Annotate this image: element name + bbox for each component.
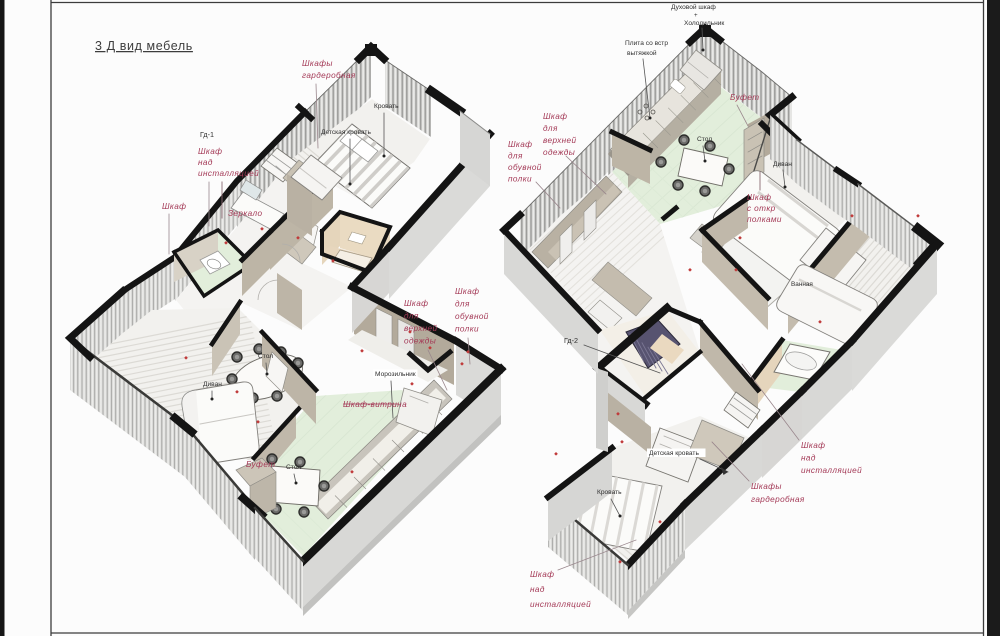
svg-text:Буфет: Буфет <box>246 460 275 469</box>
svg-text:Духовой шкаф: Духовой шкаф <box>671 3 716 11</box>
svg-text:полками: полками <box>747 215 782 224</box>
svg-text:Шкаф: Шкаф <box>162 202 186 211</box>
svg-text:Шкаф: Шкаф <box>530 570 554 579</box>
svg-text:для: для <box>455 300 470 309</box>
svg-text:Кровать: Кровать <box>597 489 622 496</box>
svg-text:с откр: с откр <box>747 204 776 213</box>
svg-text:+: + <box>694 12 698 19</box>
svg-text:Стол: Стол <box>697 136 712 143</box>
svg-text:Холодильник: Холодильник <box>684 20 724 27</box>
svg-text:Детская кровать: Детская кровать <box>321 129 371 136</box>
svg-text:Шкаф: Шкаф <box>801 441 825 450</box>
svg-text:3 Д вид мебель: 3 Д вид мебель <box>95 39 193 53</box>
svg-text:инсталляцией: инсталляцией <box>530 600 591 609</box>
svg-text:для: для <box>508 152 523 161</box>
svg-text:вытяжкой: вытяжкой <box>627 49 657 57</box>
svg-text:Буфет: Буфет <box>730 93 759 102</box>
svg-text:над: над <box>801 454 816 463</box>
svg-text:Шкаф: Шкаф <box>198 147 222 156</box>
svg-text:одежды: одежды <box>404 337 436 346</box>
svg-text:для: для <box>543 124 558 133</box>
svg-text:Гд-1: Гд-1 <box>200 130 214 139</box>
svg-text:инсталляцией: инсталляцией <box>198 169 259 178</box>
svg-text:гардеробная: гардеробная <box>751 495 805 504</box>
svg-text:Шкаф: Шкаф <box>508 140 532 149</box>
svg-text:Стол: Стол <box>286 464 301 471</box>
svg-text:Шкаф: Шкаф <box>455 287 479 296</box>
svg-text:Морозильник: Морозильник <box>375 371 416 378</box>
svg-text:обувной: обувной <box>455 312 489 321</box>
svg-text:верхней: верхней <box>543 136 576 145</box>
svg-text:инсталляцией: инсталляцией <box>801 466 862 475</box>
svg-text:Шкафы: Шкафы <box>302 59 333 68</box>
svg-text:Шкаф: Шкаф <box>747 193 771 202</box>
svg-text:Диван: Диван <box>773 161 792 168</box>
svg-text:Шкаф-витрина: Шкаф-витрина <box>343 400 407 409</box>
svg-text:Кровать: Кровать <box>374 103 399 110</box>
svg-text:одежды: одежды <box>543 148 575 157</box>
svg-text:Шкаф: Шкаф <box>404 299 428 308</box>
svg-text:над: над <box>198 158 213 167</box>
svg-text:Гд-2: Гд-2 <box>564 336 578 345</box>
svg-text:Шкаф: Шкаф <box>543 112 567 121</box>
svg-text:Ванная: Ванная <box>791 281 813 288</box>
svg-text:Стол: Стол <box>258 353 273 360</box>
svg-text:Диван: Диван <box>203 381 222 388</box>
svg-text:Детская кровать: Детская кровать <box>649 450 699 457</box>
svg-text:для: для <box>404 312 419 321</box>
svg-text:над: над <box>530 585 545 594</box>
svg-text:обувной: обувной <box>508 163 542 172</box>
svg-text:Шкафы: Шкафы <box>751 482 782 491</box>
svg-text:Плита со встр: Плита со встр <box>625 40 668 47</box>
svg-text:полки: полки <box>455 325 479 334</box>
svg-text:Зеркало: Зеркало <box>228 209 262 218</box>
svg-text:гардеробная: гардеробная <box>302 71 356 80</box>
svg-text:полки: полки <box>508 175 532 184</box>
